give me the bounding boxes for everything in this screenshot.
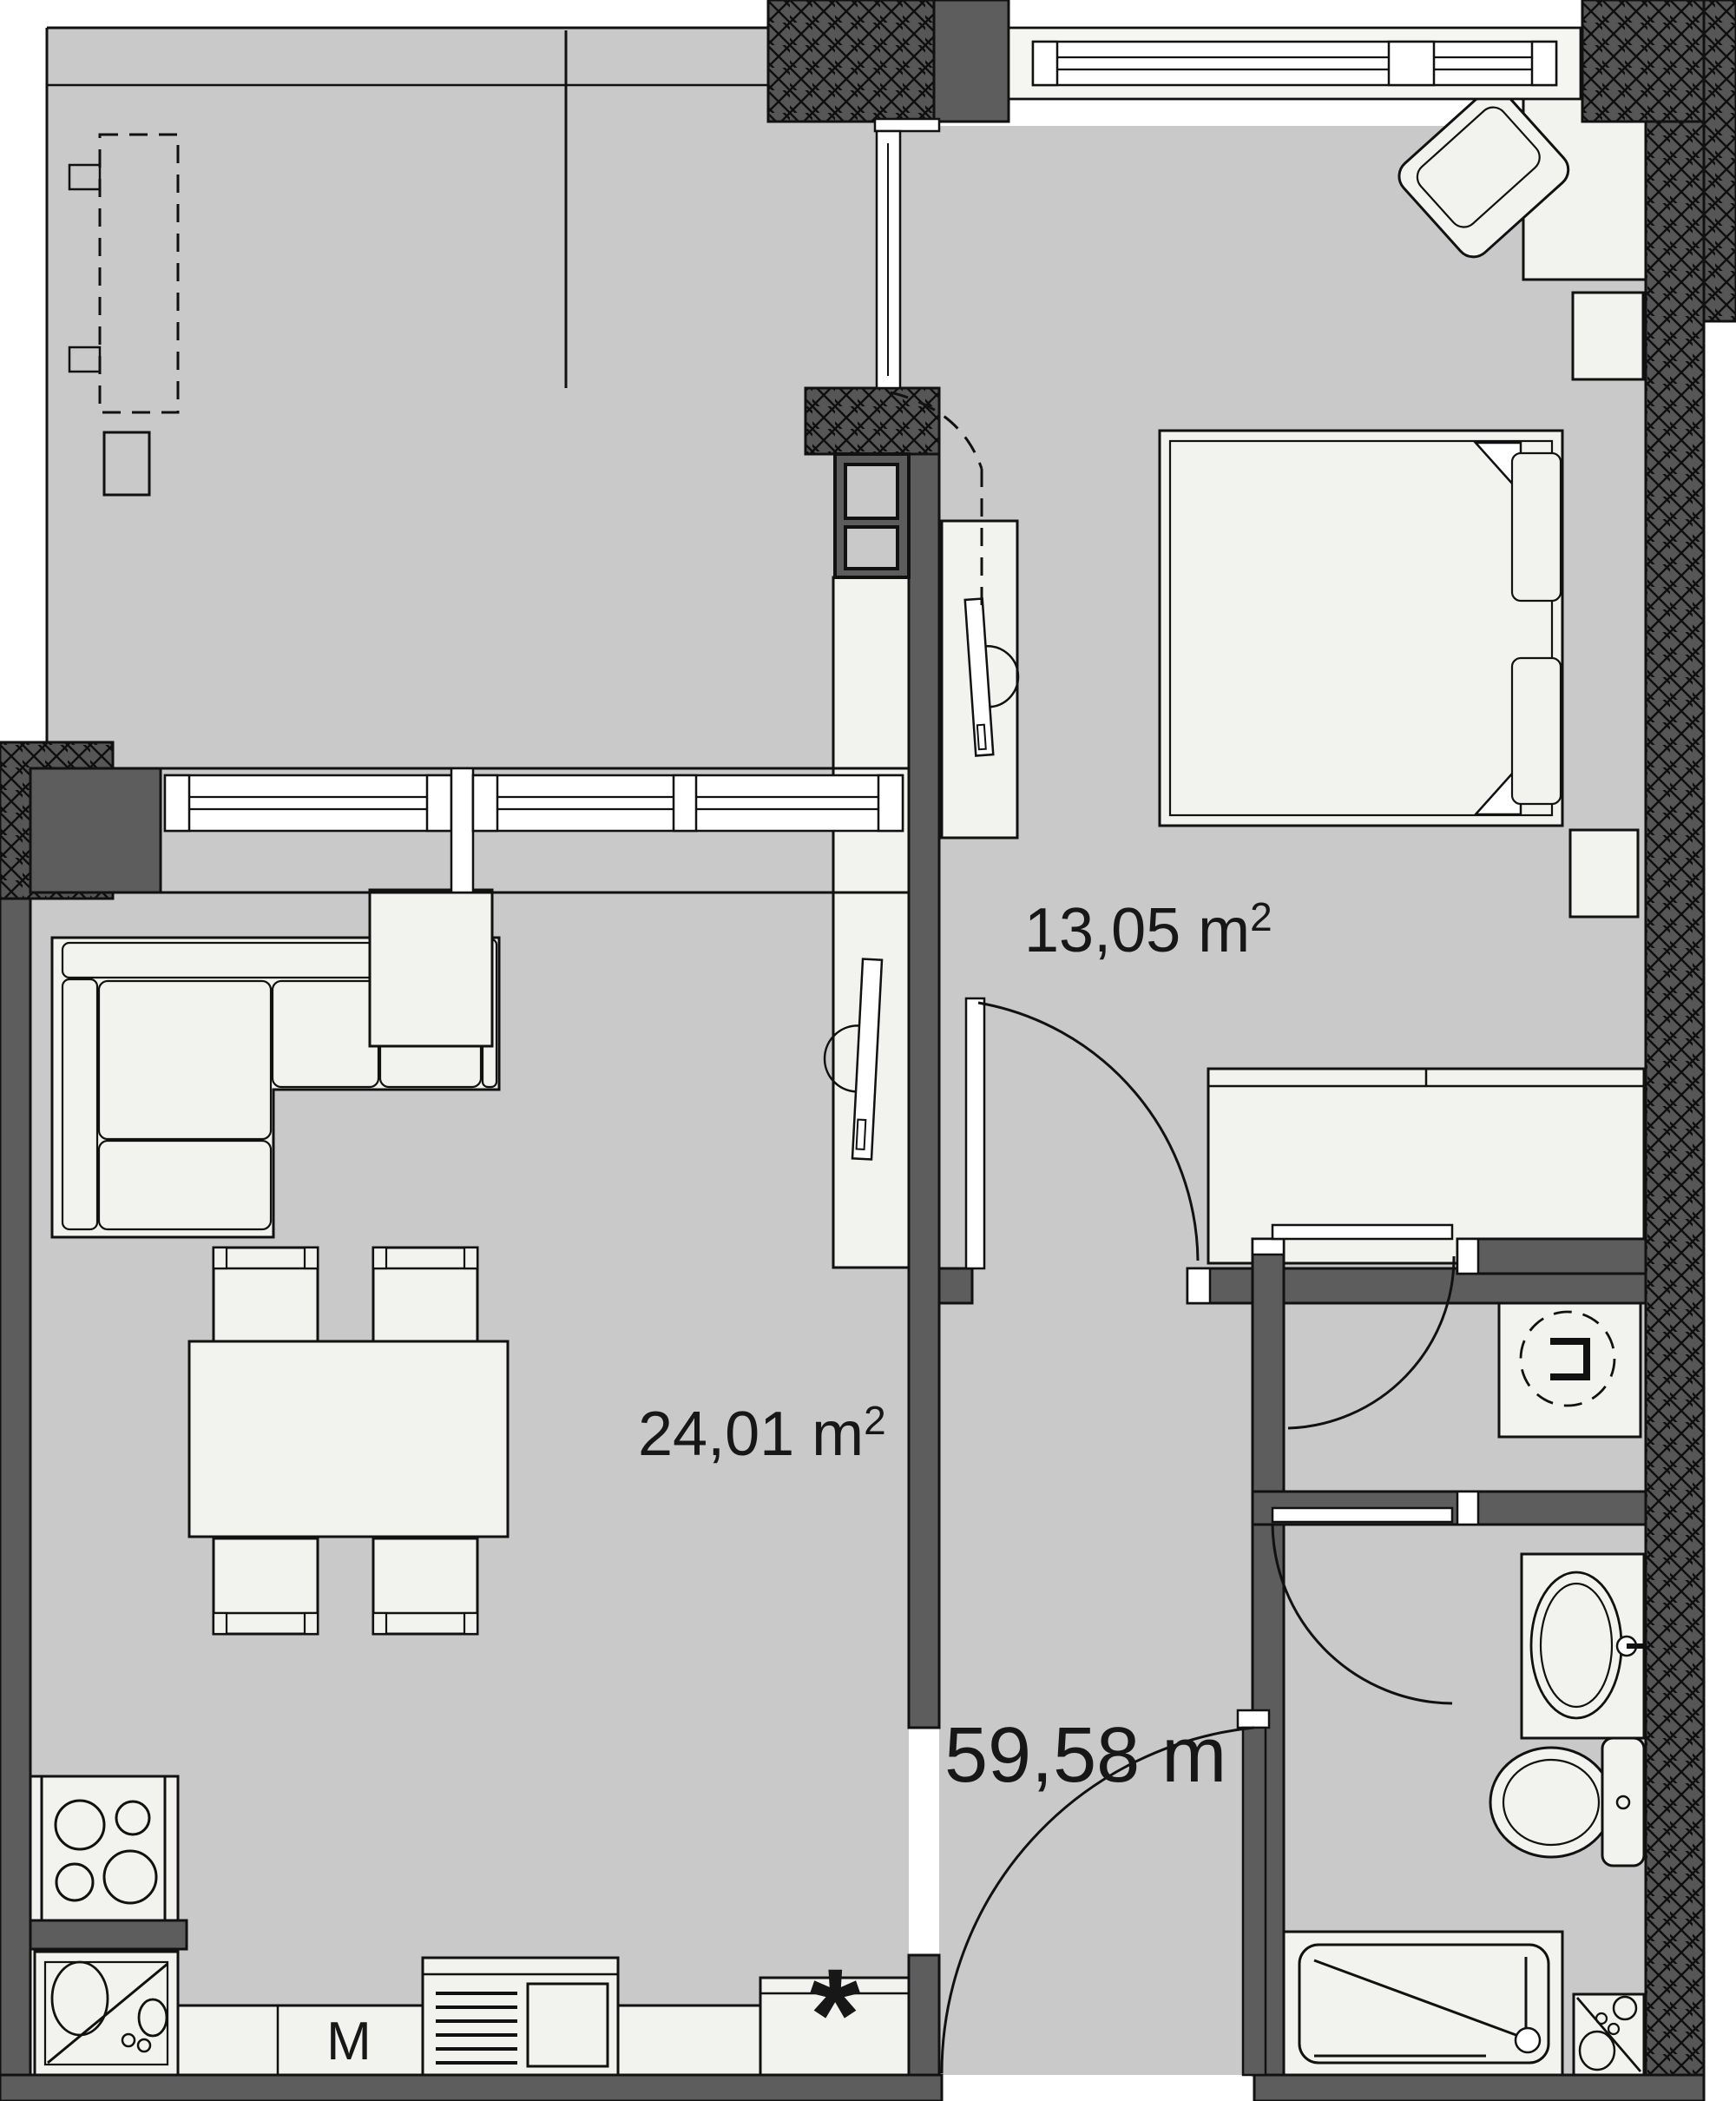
kitchen-wall-stub [30,1920,187,1949]
top-wall-hatched [768,0,934,122]
utility-sink [1574,1994,1644,2075]
fridge-star-label: * [810,1941,861,2087]
right-wall [1646,122,1704,2075]
bed [1160,431,1562,826]
dining-chair [373,1248,477,1343]
window-pier [30,768,161,892]
dining-chair [214,1538,318,1634]
dining-chair [214,1248,318,1343]
window-mullion [451,768,473,892]
bedroom-area-label: 13,05 m2 [1024,894,1272,965]
entrance-door-leaf [1243,1728,1266,2075]
bottom-wall-left [0,2075,942,2101]
bathroom-door-leaf [1272,1508,1452,1522]
window [165,775,451,831]
window [473,775,903,831]
dining-chair [373,1538,477,1634]
column-hatched [806,388,939,454]
vent-shaft [835,454,909,577]
bedroom-window [1009,28,1581,99]
right-outer-wall [1704,0,1736,321]
bedroom-door-leaf [966,998,984,1268]
dishwasher-drawers-unit [423,1958,618,2075]
shower [1284,1932,1562,2075]
pillow [1512,453,1561,601]
left-wall [0,899,30,2075]
living-area-label: 24,01 m2 [638,1398,886,1469]
kitchen-sink [35,1952,178,2075]
pillow [1512,658,1561,804]
bedroom-wall-stub [939,1268,972,1303]
central-wall [909,454,939,1728]
total-area-label: 59,58 m [944,1712,1226,1799]
dining-table [189,1341,508,1537]
floor-plan: M * [0,0,1736,2101]
nightstand [1573,293,1643,379]
top-wall-pier [934,0,1009,122]
bottom-wall-right [1254,2075,1704,2101]
central-wall-post [909,1955,939,2075]
hall-floor [939,1268,1253,2075]
washing-machine-label: M [326,2012,372,2071]
washbasin [1522,1554,1646,1738]
wc-door-leaf [1272,1225,1452,1239]
wc-top-wall [1457,1239,1646,1274]
stove [42,1776,165,1920]
terrace-floor [47,28,909,768]
tv-sideboard [819,577,909,1268]
coffee-table [370,890,492,1046]
nightstand [1570,830,1638,917]
